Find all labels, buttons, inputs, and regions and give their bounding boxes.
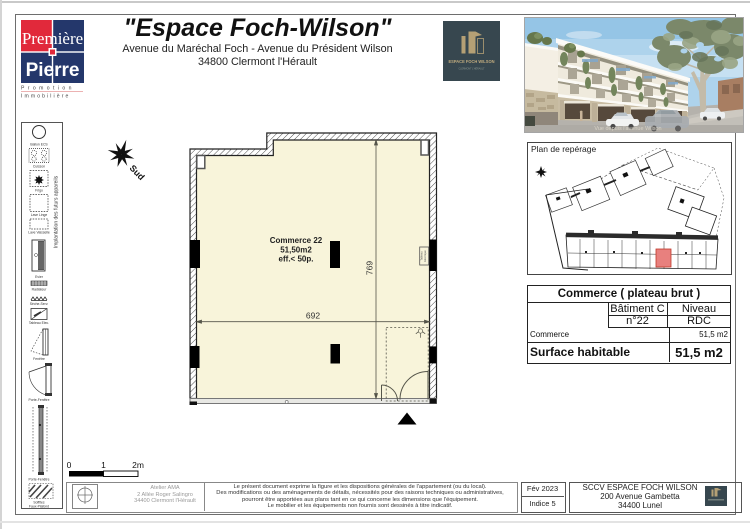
svg-text:2m: 2m: [132, 460, 144, 470]
svg-text:51,50m2: 51,50m2: [280, 246, 312, 255]
svg-text:1: 1: [101, 460, 106, 470]
svg-text:769: 769: [365, 261, 375, 275]
svg-text:Electrique: Electrique: [423, 250, 427, 262]
svg-text:Commerce 22: Commerce 22: [270, 236, 323, 245]
svg-text:eff.< 50p.: eff.< 50p.: [279, 255, 314, 264]
svg-text:0: 0: [67, 460, 72, 470]
svg-text:692: 692: [306, 311, 320, 321]
